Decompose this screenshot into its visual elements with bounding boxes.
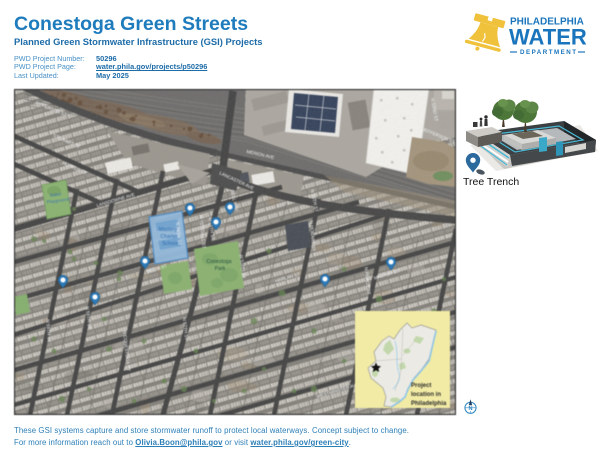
svg-text:DEPARTMENT: DEPARTMENT bbox=[520, 49, 578, 56]
svg-text:Philadelphia: Philadelphia bbox=[411, 401, 447, 407]
svg-text:Charter: Charter bbox=[160, 234, 178, 240]
svg-text:location in: location in bbox=[411, 392, 441, 398]
svg-text:Mastery: Mastery bbox=[159, 227, 178, 233]
svg-text:WATER: WATER bbox=[509, 25, 587, 50]
svg-text:Conestoga: Conestoga bbox=[206, 259, 231, 265]
svg-text:School: School bbox=[162, 241, 178, 247]
svg-text:N: N bbox=[468, 406, 472, 412]
svg-text:Project: Project bbox=[411, 383, 431, 389]
svg-text:Park: Park bbox=[215, 266, 226, 272]
